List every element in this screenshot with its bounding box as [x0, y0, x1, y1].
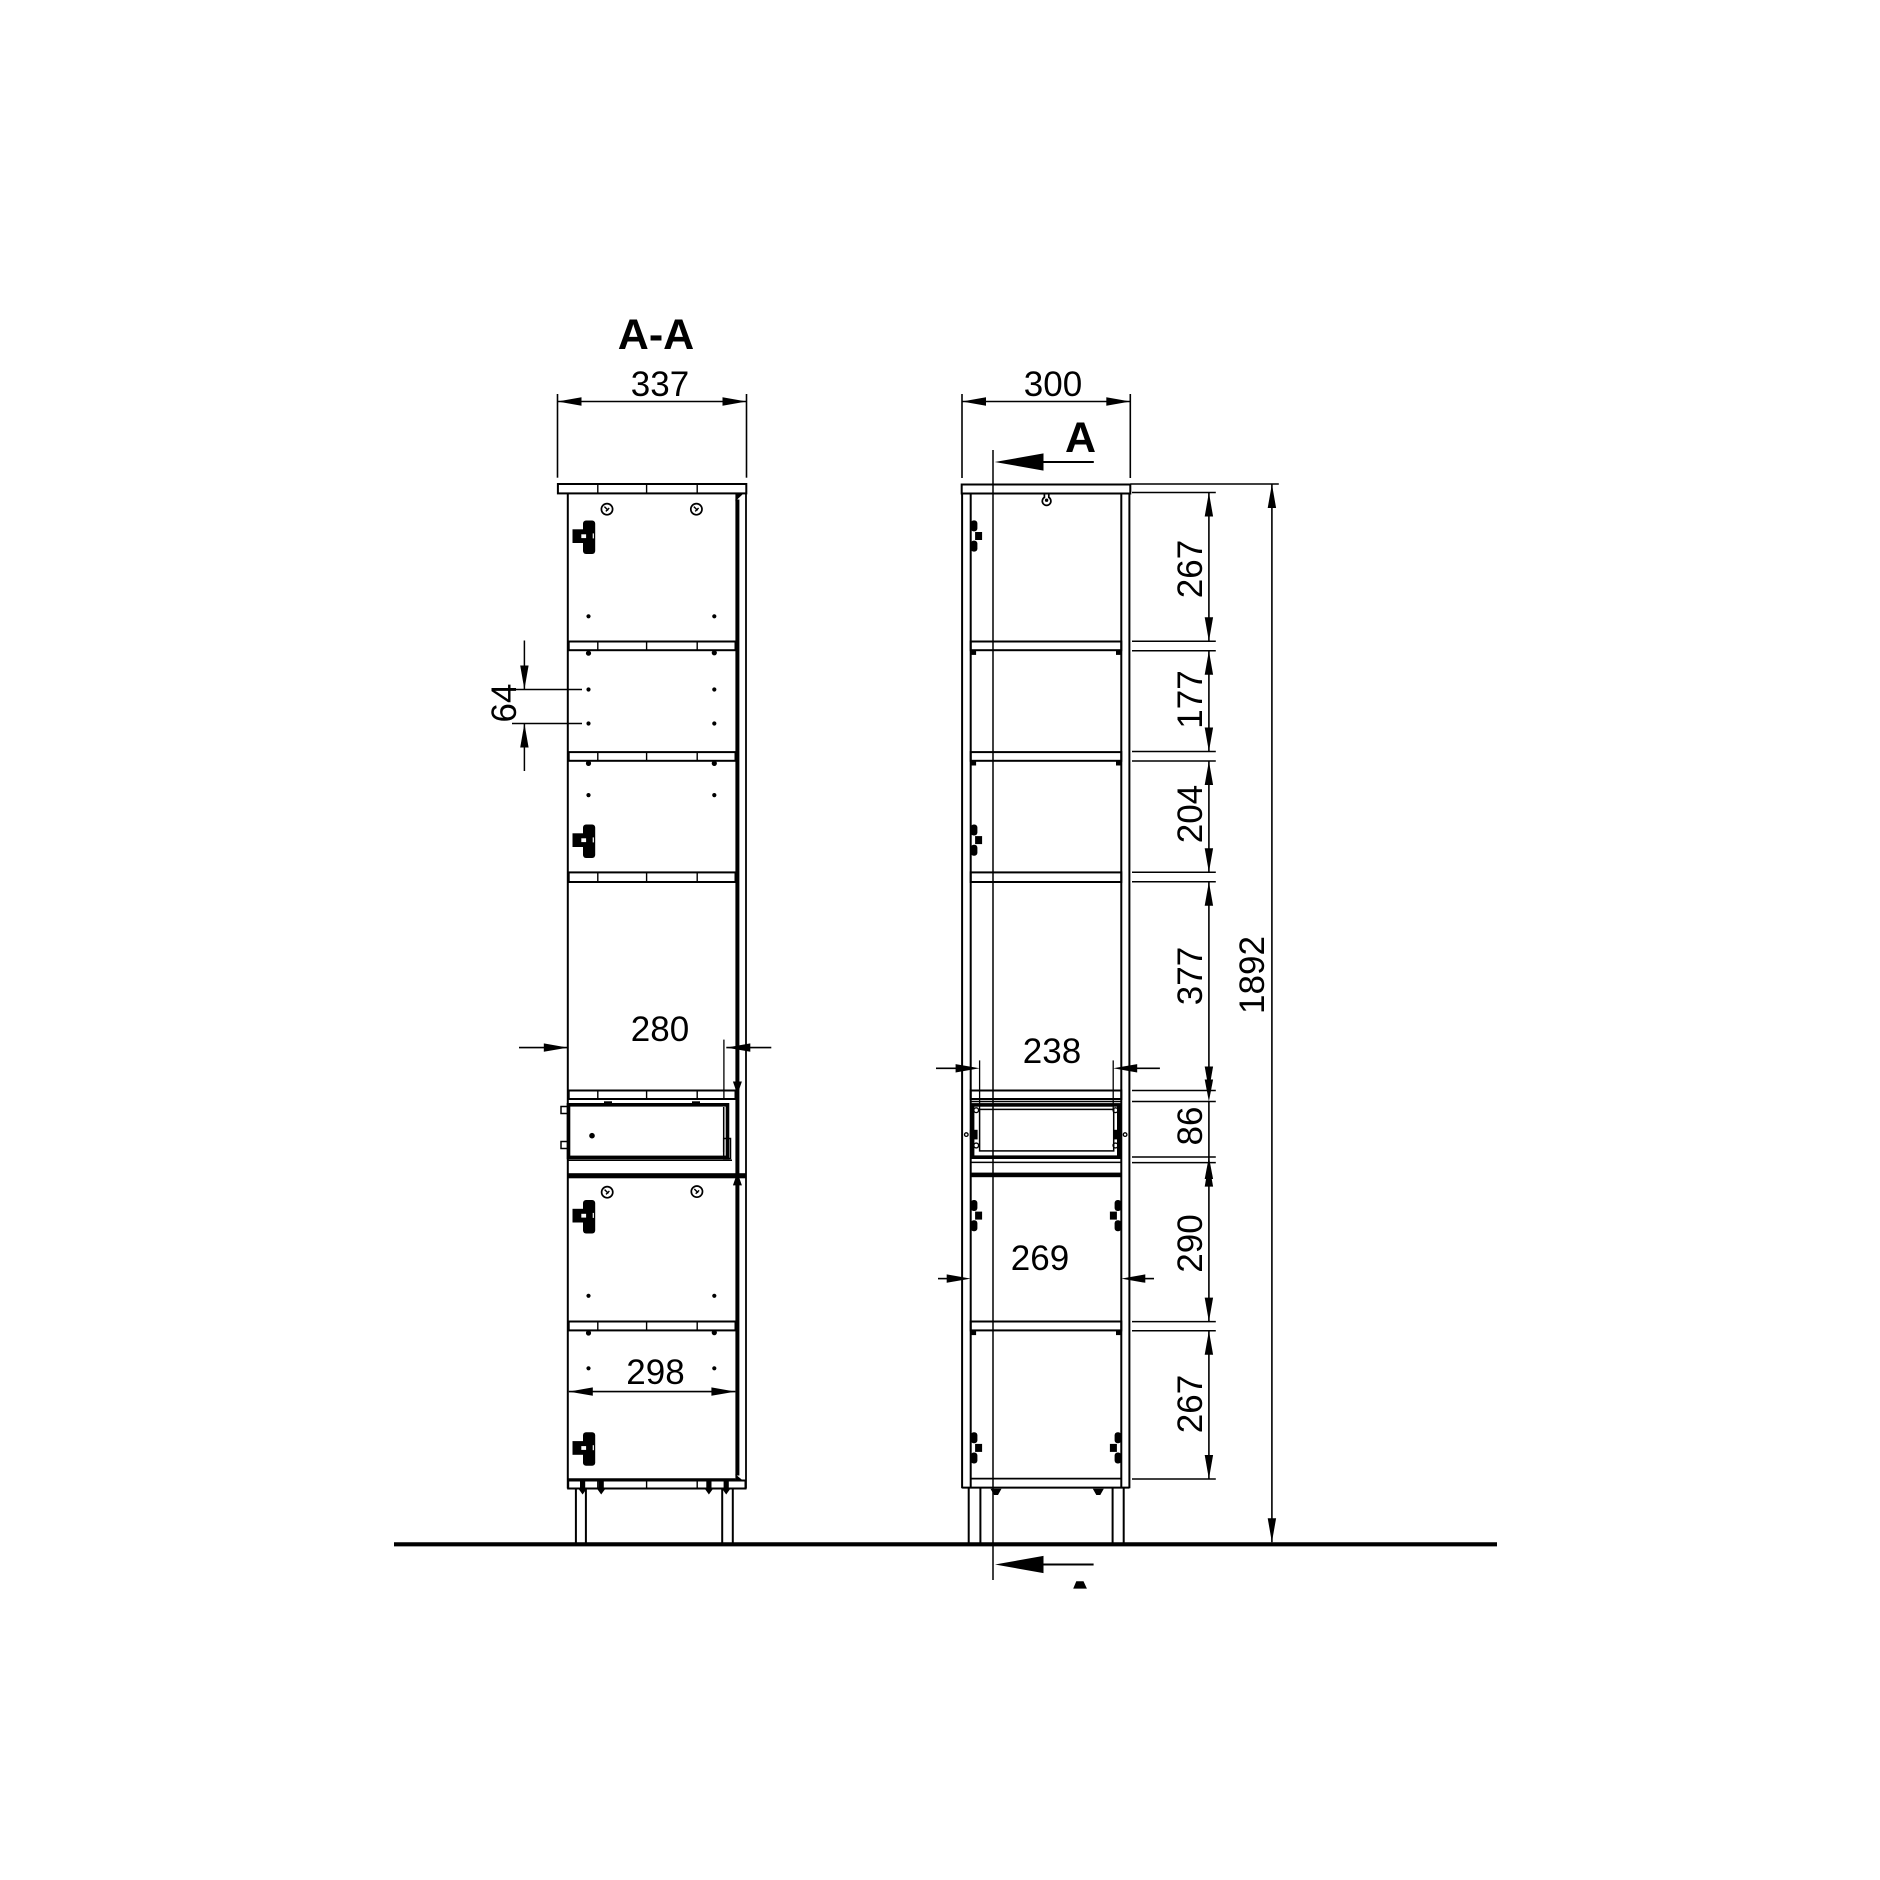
- svg-text:64: 64: [485, 684, 524, 723]
- svg-text:267: 267: [1171, 1375, 1210, 1433]
- svg-text:A-A: A-A: [618, 311, 694, 359]
- svg-text:280: 280: [631, 1010, 689, 1049]
- svg-text:298: 298: [626, 1353, 684, 1392]
- svg-text:269: 269: [1011, 1239, 1069, 1278]
- svg-text:86: 86: [1171, 1107, 1210, 1146]
- svg-text:1892: 1892: [1233, 936, 1272, 1014]
- svg-text:337: 337: [631, 365, 689, 404]
- svg-text:267: 267: [1171, 540, 1210, 598]
- svg-text:238: 238: [1023, 1032, 1081, 1071]
- svg-text:377: 377: [1171, 947, 1210, 1005]
- svg-text:204: 204: [1171, 785, 1210, 843]
- svg-text:177: 177: [1171, 670, 1210, 728]
- svg-text:300: 300: [1024, 365, 1082, 404]
- svg-text:A: A: [1065, 414, 1096, 462]
- svg-text:290: 290: [1171, 1214, 1210, 1272]
